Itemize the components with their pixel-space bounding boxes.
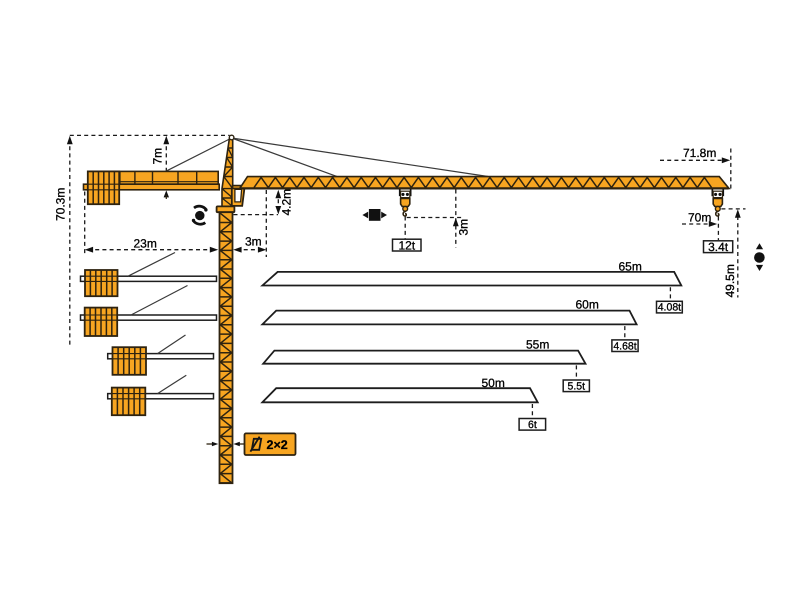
svg-text:70m: 70m xyxy=(688,211,711,225)
svg-text:60m: 60m xyxy=(576,298,599,312)
svg-text:2×2: 2×2 xyxy=(267,438,288,452)
svg-text:6t: 6t xyxy=(528,419,537,431)
svg-text:49.5m: 49.5m xyxy=(723,264,737,297)
svg-text:12t: 12t xyxy=(398,238,415,252)
svg-text:70.3m: 70.3m xyxy=(54,188,68,221)
svg-text:7m: 7m xyxy=(151,148,165,165)
svg-text:5.5t: 5.5t xyxy=(568,380,586,392)
svg-text:3.4t: 3.4t xyxy=(708,240,729,254)
svg-text:71.8m: 71.8m xyxy=(683,146,716,160)
svg-text:50m: 50m xyxy=(482,376,505,390)
svg-text:4.68t: 4.68t xyxy=(613,340,636,352)
svg-text:65m: 65m xyxy=(619,259,642,273)
svg-text:55m: 55m xyxy=(526,338,549,352)
svg-text:4.08t: 4.08t xyxy=(658,302,681,314)
svg-text:4.2m: 4.2m xyxy=(280,189,294,216)
svg-text:3m: 3m xyxy=(245,235,262,249)
svg-text:3m: 3m xyxy=(457,219,471,236)
svg-text:23m: 23m xyxy=(134,237,157,251)
